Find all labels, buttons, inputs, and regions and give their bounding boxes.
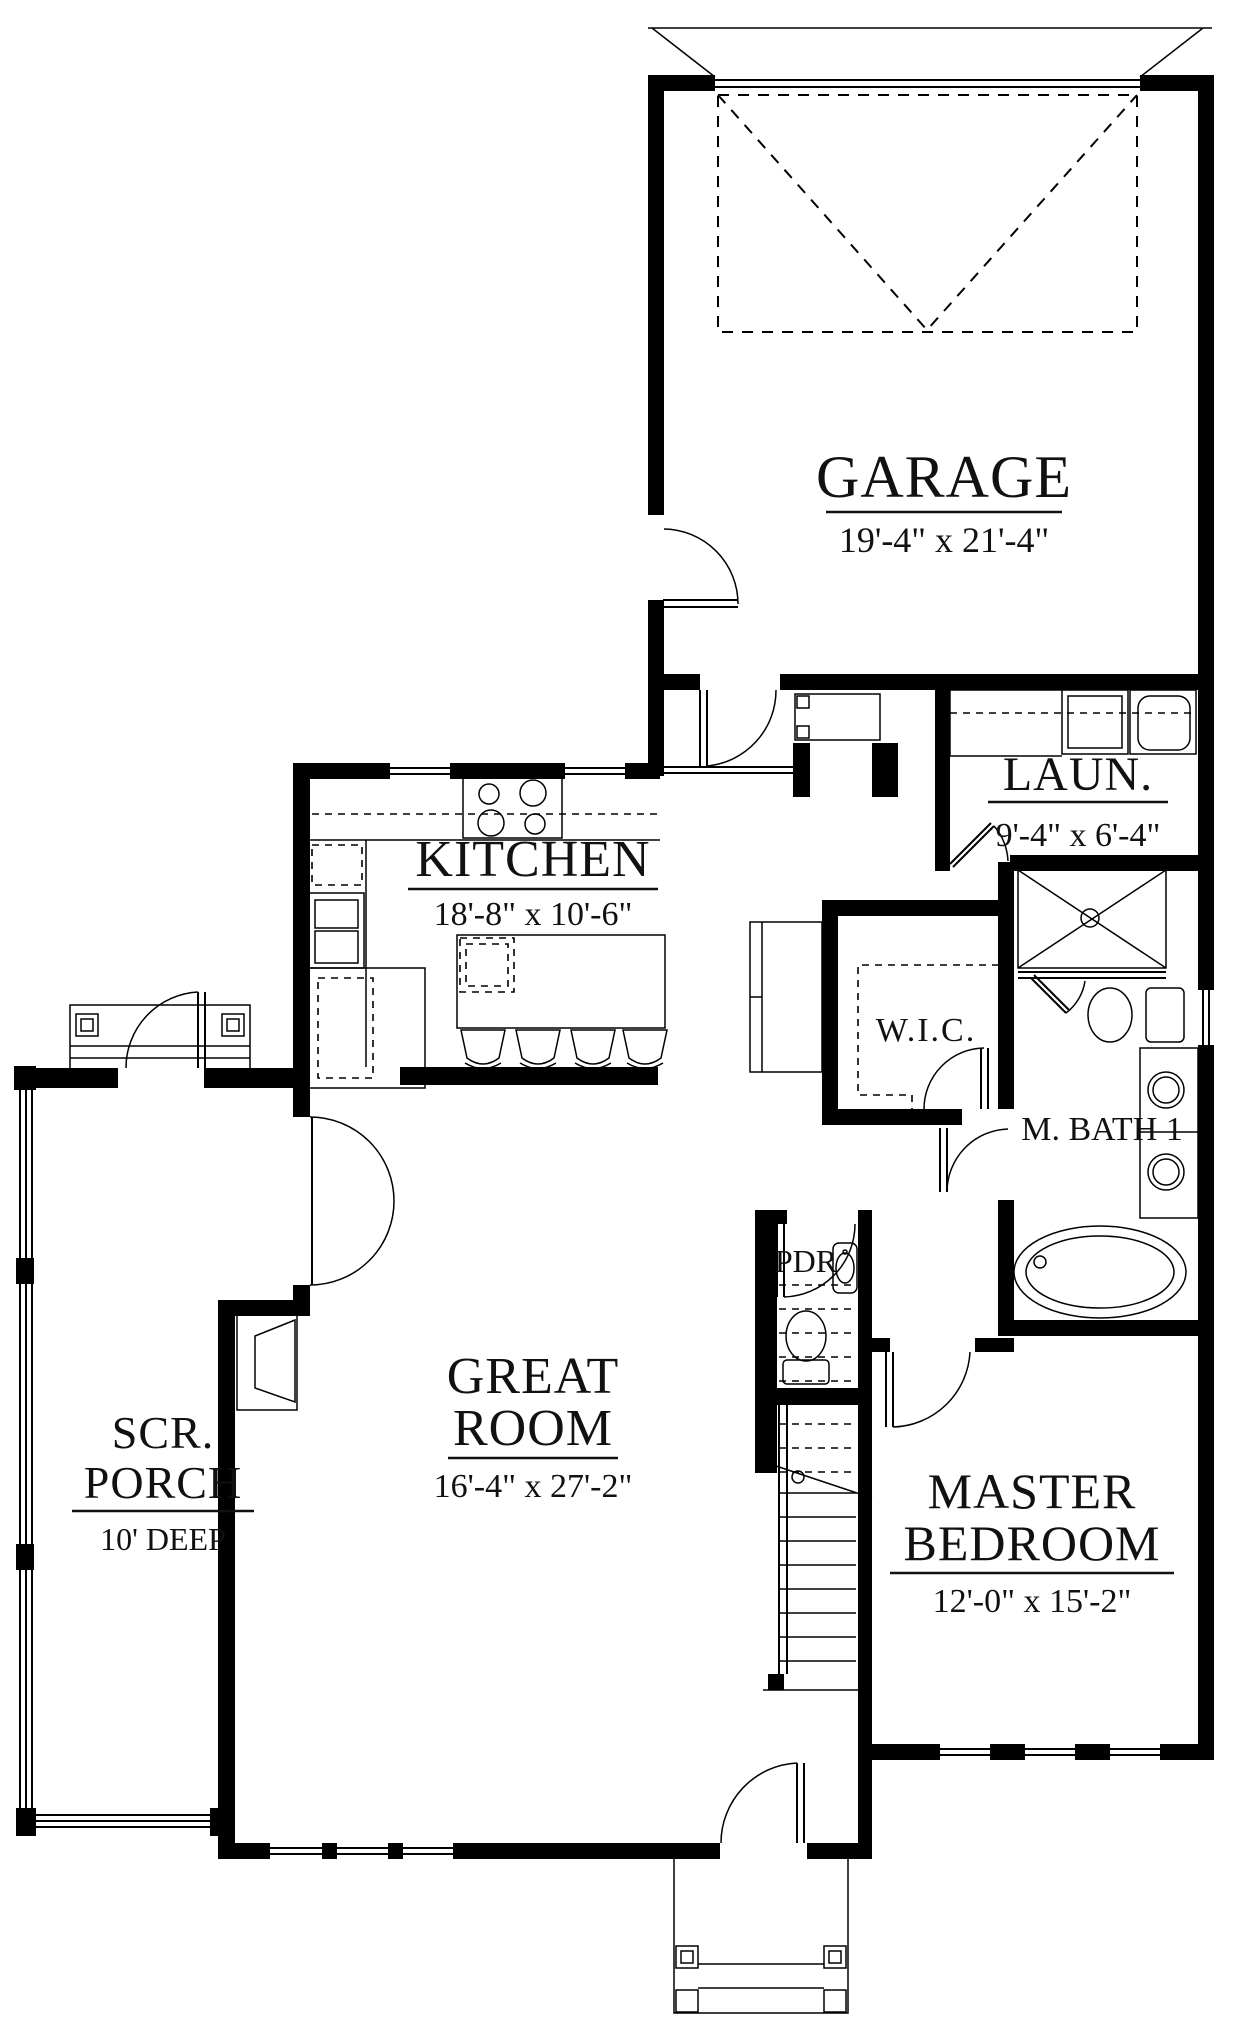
- bathtub: [1014, 1226, 1186, 1318]
- floor-plan: GARAGE 19'-4" x 21'-4" KITCHEN 18'-8" x …: [0, 0, 1256, 2038]
- mud-bench: [795, 694, 880, 740]
- master-bath-label: M. BATH 1: [1021, 1111, 1183, 1148]
- bath-fixtures: [858, 870, 1198, 1318]
- shower: [1018, 870, 1166, 978]
- master-bath-name: M. BATH 1: [1021, 1111, 1183, 1148]
- garage-name: GARAGE: [816, 444, 1072, 510]
- toilet: [1088, 988, 1184, 1042]
- garage-overhead-door: [648, 28, 1212, 332]
- wic-name: W.I.C.: [876, 1012, 976, 1049]
- kitchen-dims: 18'-8" x 10'-6": [434, 896, 633, 933]
- porch-name-1: SCR.: [112, 1407, 214, 1458]
- laundry-label: LAUN. 9'-4" x 6'-4": [988, 748, 1168, 854]
- powder-label: PDR: [775, 1243, 838, 1279]
- great-room-name-1: GREAT: [447, 1348, 620, 1405]
- laundry-fixtures: [795, 690, 1196, 756]
- great-room-name-2: ROOM: [453, 1400, 613, 1457]
- master-bedroom-label: MASTER BEDROOM 12'-0" x 15'-2": [890, 1463, 1174, 1620]
- garage-label: GARAGE 19'-4" x 21'-4": [816, 444, 1072, 560]
- bath-door: [940, 1128, 1008, 1192]
- refrigerator: [750, 922, 822, 1072]
- washer: [1062, 690, 1128, 754]
- entry-stoop: [674, 1859, 848, 2013]
- stair-handrail: [779, 1405, 787, 1674]
- room-labels: GARAGE 19'-4" x 21'-4" KITCHEN 18'-8" x …: [72, 444, 1183, 1620]
- floor-plan-drawing: GARAGE 19'-4" x 21'-4" KITCHEN 18'-8" x …: [0, 0, 1256, 2038]
- great-room-dims: 16'-4" x 27'-2": [434, 1468, 633, 1505]
- shower-door: [1031, 975, 1085, 1013]
- porch-stoop: [70, 1005, 250, 1068]
- french-doors: [310, 1117, 394, 1285]
- wic-label: W.I.C.: [876, 1012, 976, 1049]
- fireplace: [237, 1312, 297, 1410]
- laundry-dims: 9'-4" x 6'-4": [996, 817, 1161, 854]
- powder-name: PDR: [775, 1243, 838, 1279]
- master-bedroom-dims: 12'-0" x 15'-2": [933, 1583, 1132, 1620]
- porch-door: [126, 992, 205, 1068]
- kitchen-name: KITCHEN: [415, 831, 650, 888]
- powder-toilet: [783, 1311, 829, 1384]
- porch-dims: 10' DEEP: [100, 1521, 226, 1557]
- garage-service-door: [663, 529, 738, 607]
- front-door: [721, 1763, 804, 1843]
- wall-oven: [309, 893, 364, 968]
- porch-name-2: PORCH: [84, 1457, 242, 1508]
- garage-dims: 19'-4" x 21'-4": [839, 520, 1049, 560]
- master-bedroom-name-1: MASTER: [928, 1463, 1137, 1519]
- kitchen-label: KITCHEN 18'-8" x 10'-6": [408, 831, 658, 933]
- garage-to-hall-door: [700, 690, 776, 766]
- laundry-name: LAUN.: [1003, 748, 1153, 801]
- bedroom-door: [886, 1352, 970, 1427]
- kitchen-island: [457, 935, 665, 1028]
- master-bedroom-name-2: BEDROOM: [903, 1515, 1160, 1571]
- wic-door: [924, 1048, 988, 1109]
- bar-stools: [461, 1030, 667, 1069]
- great-room-label: GREAT ROOM 16'-4" x 27'-2": [434, 1348, 633, 1505]
